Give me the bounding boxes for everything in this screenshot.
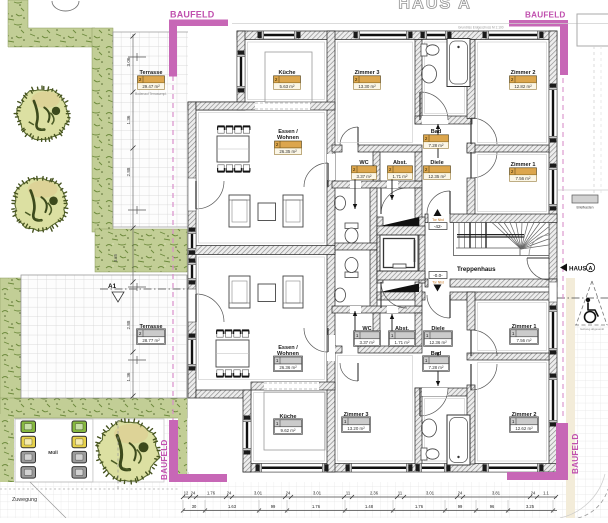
svg-text:Wohnen: Wohnen [277,135,300,141]
svg-text:2: 2 [355,77,358,82]
svg-text:Tor Nbd: Tor Nbd [432,218,444,222]
svg-text:Zimmer 2: Zimmer 2 [511,70,536,76]
svg-text:3.01: 3.01 [313,491,322,496]
svg-text:BAUFELD: BAUFELD [571,433,580,474]
svg-text:3.85: 3.85 [113,253,118,262]
svg-text:24: 24 [531,491,536,496]
svg-text:2.88: 2.88 [126,167,131,176]
svg-text:A1: A1 [108,283,117,290]
svg-text:1.76: 1.76 [312,504,321,509]
svg-text:2: 2 [353,167,356,172]
svg-text:Briefkasten: Briefkasten [577,206,594,210]
svg-text:3.06: 3.06 [126,57,131,66]
svg-text:Abst.: Abst. [393,160,407,166]
svg-text:-42-: -42- [434,224,443,229]
svg-text:2: 2 [139,77,142,82]
svg-text:99: 99 [271,504,276,509]
svg-text:HAUS: HAUS [569,266,587,273]
svg-text:99: 99 [458,504,463,509]
svg-text:1: 1 [512,331,515,336]
svg-text:1: 1 [426,333,429,338]
svg-text:30: 30 [192,504,197,509]
svg-text:WC: WC [359,160,368,166]
svg-text:Essen /: Essen / [278,345,298,351]
svg-text:Küche: Küche [278,70,295,76]
svg-text:Zuwegung: Zuwegung [12,497,37,503]
svg-text:1.36: 1.36 [126,115,131,124]
svg-text:BAUFELD: BAUFELD [170,10,215,20]
svg-text:2: 2 [276,142,279,147]
svg-text:11: 11 [346,491,351,496]
svg-text:7.56 m²: 7.56 m² [517,338,532,343]
svg-text:1: 1 [276,358,279,363]
svg-text:5.63 m²: 5.63 m² [280,84,295,89]
svg-text:Zimmer 1: Zimmer 1 [511,162,536,168]
svg-text:BAUFELD: BAUFELD [525,11,566,20]
svg-text:HAUS A: HAUS A [398,0,471,13]
svg-text:Bad: Bad [431,129,442,135]
svg-text:13.30 m²: 13.30 m² [358,84,376,89]
svg-text:Tor Nbd: Tor Nbd [432,281,444,285]
svg-text:2: 2 [511,169,514,174]
svg-text:3.37 m²: 3.37 m² [360,340,375,345]
svg-text:1.71 m²: 1.71 m² [393,174,408,179]
svg-text:1: 1 [425,358,428,363]
svg-text:3.25: 3.25 [526,504,535,509]
svg-text:24: 24 [458,491,463,496]
svg-text:Müll: Müll [48,450,58,456]
svg-text:-0.0-: -0.0- [433,273,443,278]
svg-text:9.62 m²: 9.62 m² [281,428,296,433]
svg-text:2: 2 [425,167,428,172]
svg-text:1.1: 1.1 [543,491,549,496]
svg-text:3.81: 3.81 [492,491,501,496]
svg-text:A: A [589,266,593,272]
svg-text:29.47 m²: 29.47 m² [142,84,160,89]
svg-text:1.76: 1.76 [207,491,216,496]
svg-text:1: 1 [356,333,359,338]
svg-text:Grundriss Erdgeschoss M 1:100: Grundriss Erdgeschoss M 1:100 [458,26,504,30]
svg-text:24: 24 [191,491,196,496]
svg-text:24: 24 [227,491,232,496]
svg-text:Treppenhaus: Treppenhaus [457,266,496,273]
svg-text:26.35 m²: 26.35 m² [279,149,297,154]
svg-text:26.36 m²: 26.36 m² [279,365,297,370]
svg-text:1: 1 [276,421,279,426]
svg-text:3.01: 3.01 [426,491,435,496]
svg-text:Gehweg abgesenkt: Gehweg abgesenkt [580,327,604,331]
svg-text:BAUFELD: BAUFELD [160,439,169,480]
svg-text:12.36 m²: 12.36 m² [429,340,447,345]
svg-text:2: 2 [389,167,392,172]
svg-text:3.37 m²: 3.37 m² [357,174,372,179]
svg-text:2: 2 [511,77,514,82]
svg-text:13.20 m²: 13.20 m² [347,426,365,431]
svg-text:96: 96 [490,504,495,509]
svg-text:7.28 m²: 7.28 m² [429,143,444,148]
svg-text:1: 1 [512,419,515,424]
svg-text:2: 2 [139,331,142,336]
svg-text:Bodenauf Terrassenpl.: Bodenauf Terrassenpl. [135,92,167,96]
svg-text:2: 2 [425,136,428,141]
svg-text:1.36: 1.36 [126,372,131,381]
svg-text:24: 24 [286,491,291,496]
svg-text:2.36: 2.36 [370,491,379,496]
svg-text:12.35 m²: 12.35 m² [428,174,446,179]
svg-text:7.28 m²: 7.28 m² [429,365,444,370]
svg-text:1.71 m²: 1.71 m² [395,340,410,345]
svg-text:1: 1 [391,333,394,338]
svg-text:Terrasse: Terrasse [140,70,163,76]
svg-text:2: 2 [275,77,278,82]
svg-text:2.88: 2.88 [126,320,131,329]
svg-text:Zimmer 3: Zimmer 3 [355,70,380,76]
svg-text:7.56 m²: 7.56 m² [516,176,531,181]
svg-text:3.01: 3.01 [254,491,263,496]
svg-text:1.63: 1.63 [228,504,237,509]
svg-text:28.77 m²: 28.77 m² [142,338,160,343]
svg-text:12: 12 [184,491,189,496]
svg-text:Diele: Diele [430,160,443,166]
svg-text:11: 11 [398,491,403,496]
svg-text:1: 1 [344,419,347,424]
svg-text:12.82 m²: 12.82 m² [514,84,532,89]
svg-text:1.76: 1.76 [415,504,424,509]
svg-text:12.62 m²: 12.62 m² [515,426,533,431]
svg-text:1.48: 1.48 [365,504,374,509]
svg-text:Essen /: Essen / [278,129,298,135]
